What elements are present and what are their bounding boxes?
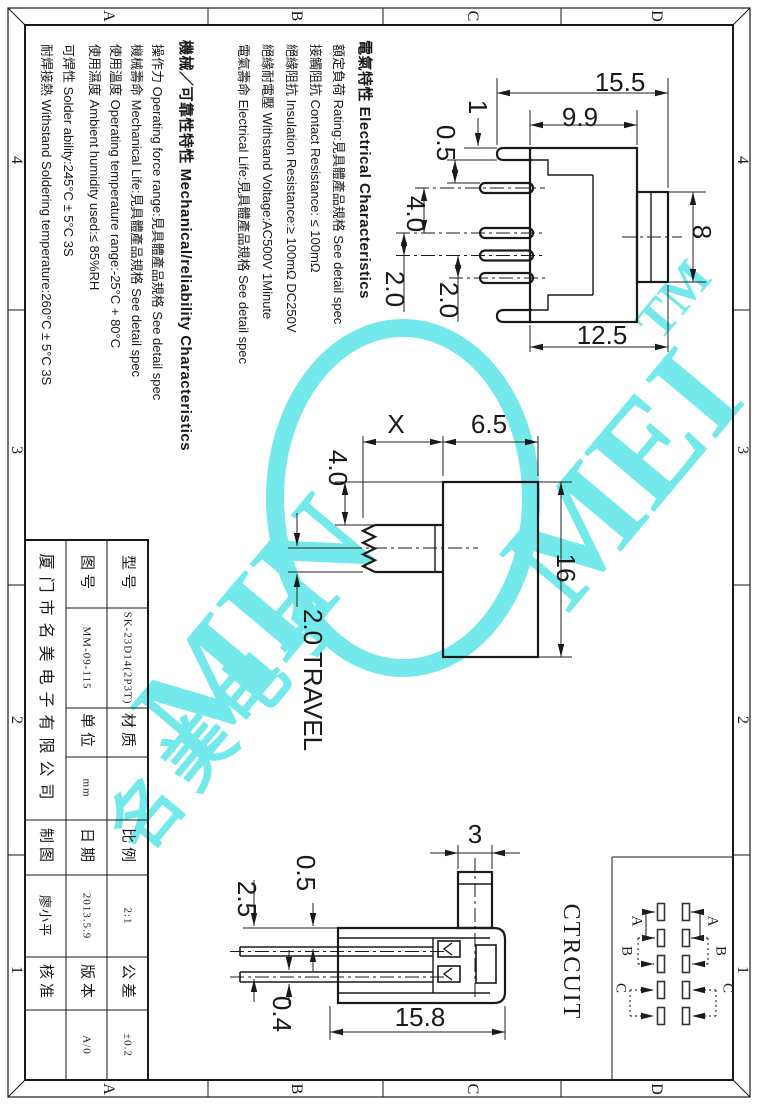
- company-name: 厦门市名美电子有限公司: [37, 553, 53, 806]
- circuit-links: [630, 912, 716, 1016]
- dim-knob-height: 8: [689, 225, 715, 239]
- zone-col-b-top: B: [288, 11, 304, 22]
- body-front: [443, 482, 538, 657]
- zone-row-4-left: 4: [8, 156, 24, 164]
- zone-col-c-bottom: C: [464, 1084, 480, 1095]
- circuit-pos-a-right: A: [705, 916, 720, 927]
- label-unit: 单位: [79, 713, 94, 751]
- mount-tab-top: [497, 148, 532, 160]
- dim-travel: 2.0 TRAVEL: [300, 609, 326, 751]
- value-drawing-no: MM-09-115: [81, 627, 92, 690]
- circuit-pads: [658, 904, 690, 1025]
- note-operating-temperature: 使用溫度 Operating temperature range:-25°C +…: [109, 44, 122, 348]
- contact-2: [438, 966, 460, 982]
- circuit-pos-c-right: C: [720, 983, 735, 993]
- dim-shaft-length-x: X: [387, 411, 404, 437]
- value-drafter: 廖小平: [39, 895, 52, 937]
- zone-col-a-top: A: [100, 10, 116, 22]
- value-tolerance: ±0.2: [122, 1033, 133, 1057]
- switch-body: [530, 148, 637, 322]
- dim-pin-pitch-4: 4.0: [403, 196, 429, 232]
- dim-body-width: 9.9: [562, 104, 598, 130]
- side-view-outline: [480, 148, 668, 322]
- side-view-centerlines: [396, 188, 682, 278]
- circuit-pos-b-right: B: [713, 946, 728, 956]
- zone-row-2-left: 2: [8, 716, 24, 724]
- circuit-pos-c-left: C: [613, 983, 628, 993]
- label-model: 型号: [120, 555, 135, 593]
- contact-2-chevron: [444, 968, 452, 980]
- mount-tab-bottom: [497, 310, 532, 322]
- dim-body-thickness: 6.5: [471, 411, 507, 437]
- label-version: 版本: [79, 964, 94, 1002]
- value-model: SK-23D14(2P3T): [122, 612, 133, 705]
- dim-lead-thickness: 0.4: [269, 996, 295, 1032]
- zone-row-3-left: 3: [8, 446, 24, 454]
- circuit-title: CTRCUIT: [559, 904, 583, 1021]
- note-ambient-humidity: 使用濕度 Ambient humidity used:≤ 85%RH: [88, 44, 101, 290]
- dim-body-depth: 12.5: [577, 322, 628, 348]
- note-withstand-soldering: 耐焊接熱 Withstand Soldering temperature:260…: [40, 44, 53, 385]
- note-operating-force: 操作力 Operating force range:見具體產品規格 See de…: [151, 44, 164, 400]
- dim-pin-offset: 0.5: [433, 125, 459, 161]
- dim-lead-gap: 0.5: [293, 855, 319, 891]
- zone-col-c-top: C: [464, 11, 480, 22]
- engineering-drawing-sheet: MIN MEI TM 名美电子: [0, 0, 758, 1105]
- label-drawing-no: 图号: [79, 555, 94, 593]
- note-rating: 額定負荷 Rating:見具體產品規格 See detail spec: [332, 44, 345, 324]
- zone-row-1-left: 1: [8, 966, 24, 974]
- mechanical-notes-title: 機械／可靠性特性 Mechanical/reliability Characte…: [178, 40, 193, 451]
- zone-col-d-bottom: D: [648, 1083, 664, 1095]
- zone-row-4-right: 4: [734, 156, 750, 164]
- note-insulation-resistance: 絕緣阻抗 Insulation Resistance:≥ 100mΩ DC250…: [285, 44, 298, 333]
- slider-contact: [476, 945, 496, 983]
- zone-col-a-bottom: A: [100, 1083, 116, 1095]
- value-version: A/0: [81, 1035, 92, 1055]
- zone-row-2-right: 2: [734, 716, 750, 724]
- frame-outer: [338, 928, 505, 1003]
- dim-overall-length: 15.8: [395, 1004, 446, 1030]
- note-electrical-life: 電氣壽命 Electrical Life:見具體產品規格 See detail …: [237, 44, 250, 364]
- value-scale: 2:1: [122, 907, 133, 924]
- circuit-diagram: [612, 857, 733, 1080]
- zone-row-1-right: 1: [734, 966, 750, 974]
- note-solderability: 可焊性 Solder ability:245°C ± 5°C 3S: [62, 44, 75, 257]
- dim-tab-thickness: 1: [465, 100, 491, 114]
- top-view-outline: [240, 872, 505, 1003]
- zone-row-3-right: 3: [734, 446, 750, 454]
- contact-1: [438, 941, 460, 957]
- value-unit: mm: [81, 778, 92, 797]
- label-date: 日期: [79, 828, 94, 866]
- dim-body-height: 16: [553, 554, 579, 583]
- note-mechanical-life: 機械壽命 Mechanical Life:見具體產品規格 See detail …: [130, 44, 143, 377]
- note-contact-resistance: 接觸阻抗 Contact Resistance: ≤ 100mΩ: [309, 44, 322, 273]
- dim-lead-offset: 2.5: [234, 881, 260, 917]
- circuit-box: [612, 857, 733, 1080]
- dim-pin-pitch-2b: 2.0: [436, 282, 462, 318]
- zone-col-b-bottom: B: [288, 1084, 304, 1095]
- electrical-notes-title: 電氣特性 Electrical Characteristics: [357, 40, 372, 299]
- value-date: 2013.5.9: [81, 893, 92, 940]
- label-drafter: 制图: [38, 828, 53, 866]
- label-material: 材质: [120, 713, 135, 751]
- dim-pin-pitch-2a: 2.0: [382, 271, 408, 307]
- body-steps: [530, 160, 593, 310]
- note-withstand-voltage: 絕緣耐電壓 Withstand Voltage:AC500V 1Minute: [261, 44, 274, 319]
- label-tolerance: 公差: [120, 964, 135, 1002]
- circuit-pos-b-left: B: [619, 946, 634, 956]
- zone-col-d-top: D: [648, 10, 664, 22]
- dim-overall-width: 15.5: [595, 69, 646, 95]
- dim-knob-width: 3: [468, 821, 482, 847]
- label-approver: 核准: [38, 964, 53, 1002]
- circuit-pos-a-left: A: [629, 916, 644, 927]
- front-view-outline: [363, 482, 538, 657]
- label-scale: 比例: [120, 828, 135, 866]
- dim-shaft-offset: 4.0: [325, 450, 351, 486]
- contact-1-chevron: [444, 943, 452, 955]
